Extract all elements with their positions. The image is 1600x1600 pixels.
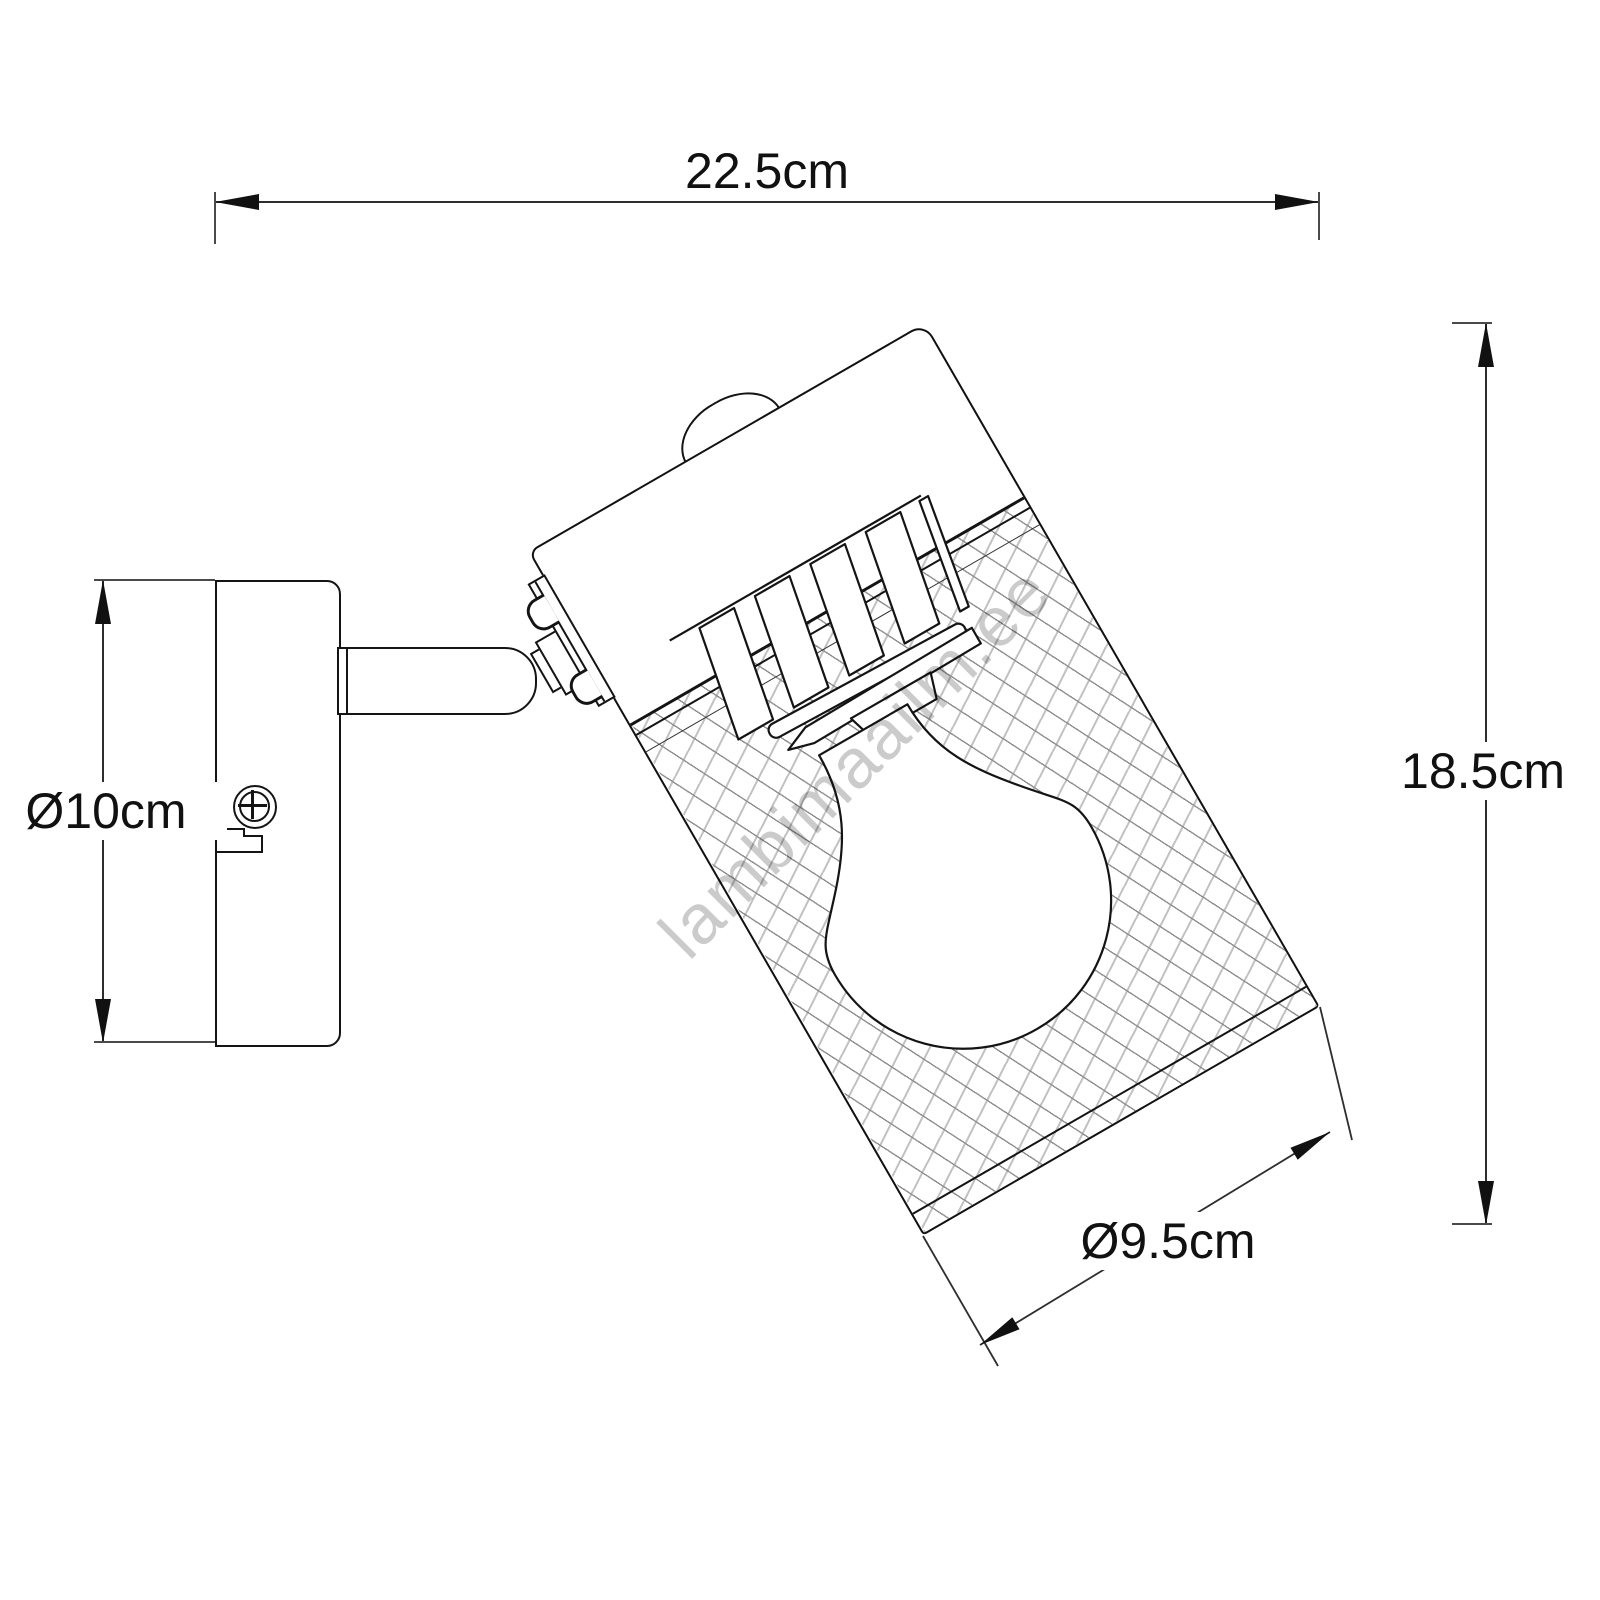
arrowhead-icon [980,1317,1020,1345]
pivot-arm [337,647,537,715]
arm-flange-line [346,649,348,713]
screw-inner-circle [239,791,270,822]
screw-cross-v [251,790,254,819]
extension-line [923,1236,998,1366]
extension-line [1320,1007,1352,1140]
dimension-label-width: 22.5cm [617,144,917,198]
wall-plate [215,580,341,1047]
technical-drawing-canvas: 22.5cm 18.5cm Ø10cm Ø9.5cm [0,0,1600,1600]
dimension-label-height: 18.5cm [1372,742,1594,800]
screw-icon [233,785,277,829]
arrowhead-icon [1291,1132,1331,1160]
dimension-label-shade-diameter: Ø9.5cm [1047,1212,1289,1270]
dimension-label-base-diameter: Ø10cm [0,782,227,840]
